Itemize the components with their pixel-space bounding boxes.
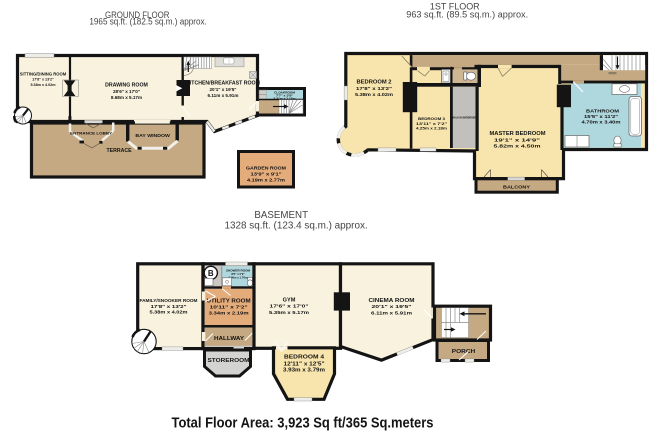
svg-text:17'6" x 17'0": 17'6" x 17'0"	[270, 304, 309, 310]
svg-text:5.35m x 5.17m: 5.35m x 5.17m	[269, 310, 309, 316]
svg-text:MASTER BEDROOM: MASTER BEDROOM	[490, 131, 546, 137]
svg-text:5.38m x 4.02m: 5.38m x 4.02m	[150, 310, 188, 315]
svg-text:13'9" x 9'1": 13'9" x 9'1"	[251, 172, 282, 177]
svg-text:BEDROOM 4: BEDROOM 4	[284, 355, 325, 361]
svg-text:12'11" x 12'5": 12'11" x 12'5"	[284, 361, 326, 367]
svg-text:3.93m x 3.79m: 3.93m x 3.79m	[283, 368, 326, 374]
svg-text:BATHROOM: BATHROOM	[586, 108, 619, 113]
svg-text:28'6" x 17'0": 28'6" x 17'0"	[113, 89, 140, 94]
svg-text:963 sq.ft. (89.5 sq.m.) approx: 963 sq.ft. (89.5 sq.m.) approx.	[406, 10, 528, 20]
svg-text:HALLWAY: HALLWAY	[214, 336, 244, 342]
svg-text:15'5" x 11'2": 15'5" x 11'2"	[584, 114, 618, 119]
svg-text:8.68m x 5.17m: 8.68m x 5.17m	[111, 95, 142, 100]
svg-text:WALK IN WARDROBE: WALK IN WARDROBE	[452, 117, 476, 120]
svg-text:BALCONY: BALCONY	[503, 185, 530, 190]
svg-text:GYM: GYM	[283, 297, 296, 303]
svg-text:13'11" x 7'2": 13'11" x 7'2"	[416, 122, 448, 126]
svg-text:17'8" x 13'2": 17'8" x 13'2"	[32, 78, 54, 82]
svg-text:CINEMA ROOM: CINEMA ROOM	[369, 298, 416, 304]
svg-text:GARDEN ROOM: GARDEN ROOM	[246, 166, 286, 171]
svg-text:4.25m x 2.18m: 4.25m x 2.18m	[416, 127, 447, 131]
svg-text:STOREROOM: STOREROOM	[208, 358, 251, 364]
svg-text:1965 sq.ft. (182.5 sq.m.) appr: 1965 sq.ft. (182.5 sq.m.) approx.	[89, 16, 206, 26]
svg-text:10'11" x 7'2": 10'11" x 7'2"	[210, 304, 248, 309]
svg-text:19'1" x 14'9": 19'1" x 14'9"	[494, 137, 540, 142]
svg-text:BEDROOM 3: BEDROOM 3	[418, 117, 445, 121]
svg-text:B: B	[208, 269, 214, 278]
svg-text:17'8" x 13'2": 17'8" x 13'2"	[356, 86, 392, 91]
svg-text:5.38m x 4.02m: 5.38m x 4.02m	[30, 83, 56, 87]
svg-text:3.34m x 2.19m: 3.34m x 2.19m	[209, 310, 249, 315]
svg-text:SITTING/DINING ROOM: SITTING/DINING ROOM	[20, 72, 67, 77]
svg-text:5.82m x 4.50m: 5.82m x 4.50m	[494, 144, 541, 149]
svg-text:PORCH: PORCH	[452, 349, 476, 355]
svg-text:4.19m x 2.77m: 4.19m x 2.77m	[247, 178, 285, 183]
svg-text:DRAWING ROOM: DRAWING ROOM	[105, 83, 148, 89]
svg-text:20'1" x 19'5": 20'1" x 19'5"	[210, 87, 237, 92]
svg-text:6.11m x 5.91m: 6.11m x 5.91m	[208, 93, 239, 98]
svg-text:Total Floor Area: 3,923 Sq ft/: Total Floor Area: 3,923 Sq ft/365 Sq.met…	[172, 414, 434, 431]
svg-text:ENTRANCE LOBBY: ENTRANCE LOBBY	[70, 130, 112, 135]
svg-text:6.11m x 5.91m: 6.11m x 5.91m	[371, 310, 412, 316]
svg-text:FAMILY/SNOOKER ROOM: FAMILY/SNOOKER ROOM	[140, 298, 198, 303]
svg-text:20'1" x 19'5": 20'1" x 19'5"	[372, 304, 412, 310]
svg-text:KITCHEN/BREAKFAST ROOM: KITCHEN/BREAKFAST ROOM	[186, 81, 260, 87]
svg-text:BEDROOM 2: BEDROOM 2	[357, 80, 392, 86]
svg-text:BASEMENT: BASEMENT	[254, 210, 308, 221]
svg-text:17'8" x 13'2": 17'8" x 13'2"	[151, 304, 187, 309]
svg-text:TERRACE: TERRACE	[106, 148, 132, 154]
svg-text:BAY WINDOW: BAY WINDOW	[135, 133, 170, 138]
svg-text:4.70m x 3.40m: 4.70m x 3.40m	[582, 119, 621, 124]
svg-text:1328 sq.ft. (123.4 sq.m.) appr: 1328 sq.ft. (123.4 sq.m.) approx.	[225, 221, 368, 232]
svg-text:5.38m x 4.02m: 5.38m x 4.02m	[355, 92, 393, 97]
